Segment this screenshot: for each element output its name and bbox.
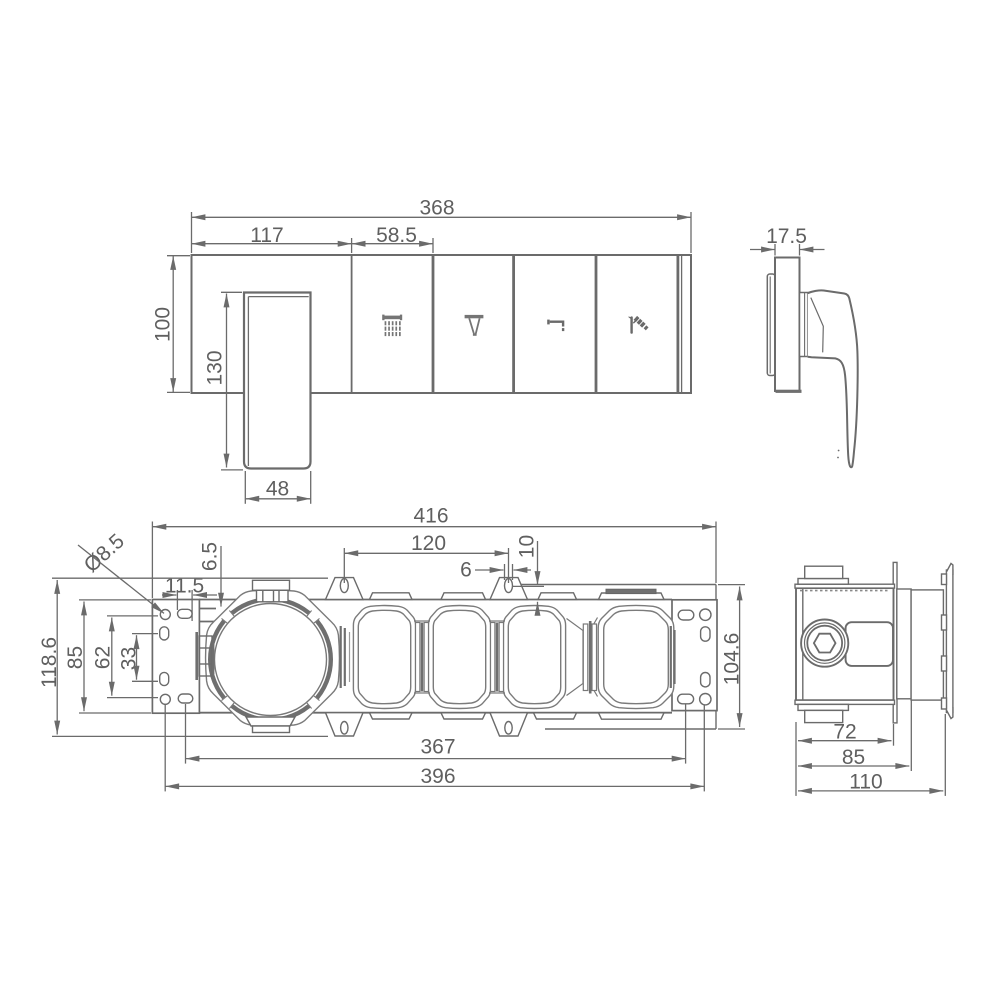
svg-text:416: 416 — [413, 505, 448, 528]
svg-text:100: 100 — [152, 307, 175, 342]
svg-text:62: 62 — [92, 646, 115, 669]
svg-text:6: 6 — [460, 559, 472, 582]
svg-text:17.5: 17.5 — [766, 225, 807, 248]
svg-text:396: 396 — [420, 765, 455, 788]
svg-text:120: 120 — [411, 532, 446, 555]
svg-text:6.5: 6.5 — [199, 542, 222, 571]
svg-text:130: 130 — [204, 350, 227, 385]
svg-text:367: 367 — [420, 736, 455, 759]
svg-text:110: 110 — [849, 771, 882, 794]
svg-text:10: 10 — [516, 535, 539, 558]
svg-text:368: 368 — [419, 197, 454, 220]
svg-text:48: 48 — [266, 478, 289, 501]
